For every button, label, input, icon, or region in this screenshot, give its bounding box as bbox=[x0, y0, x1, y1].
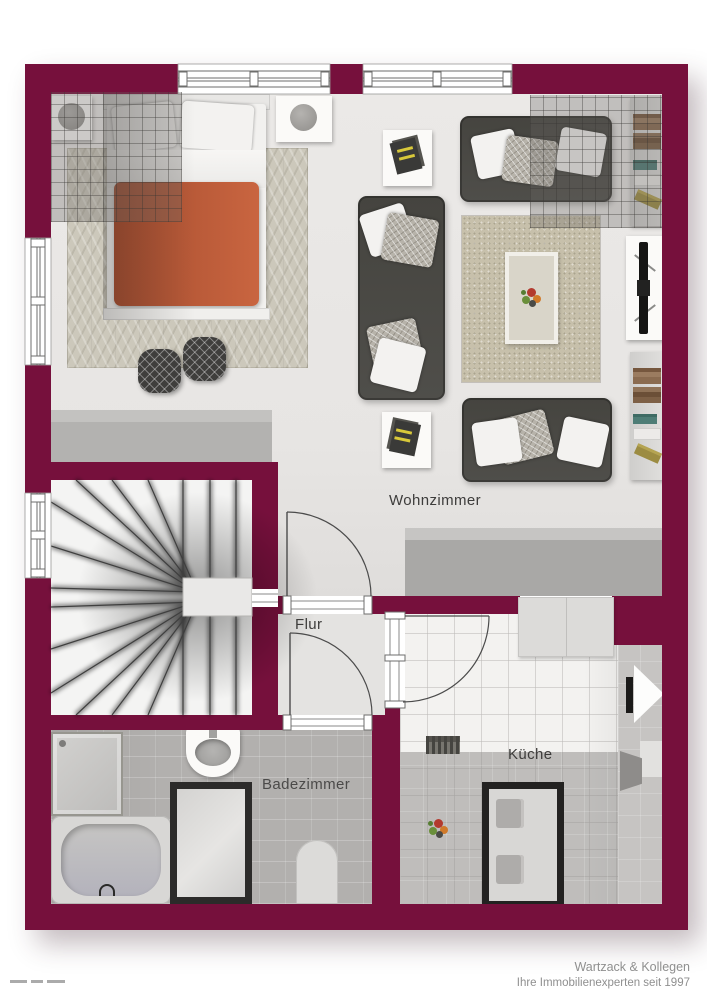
kitchen-table bbox=[482, 782, 564, 908]
fruit-bowl bbox=[521, 287, 543, 309]
living-wall-shadow bbox=[405, 528, 662, 596]
chair bbox=[496, 799, 524, 828]
footer-company: Wartzack & Kollegen bbox=[517, 959, 690, 976]
footer-branding: Wartzack & Kollegen Ihre Immobilienexper… bbox=[517, 959, 690, 991]
sofa-top bbox=[460, 116, 612, 202]
art-print bbox=[390, 137, 423, 174]
books bbox=[633, 160, 657, 170]
bathtub-faucet bbox=[99, 884, 115, 896]
books bbox=[633, 368, 661, 384]
sofa-pillow bbox=[556, 416, 610, 469]
sofa-bottom bbox=[462, 398, 612, 482]
double-bed bbox=[103, 94, 270, 320]
side-table-art-top bbox=[383, 130, 432, 186]
kitchen-counter-right bbox=[618, 645, 666, 904]
books bbox=[633, 114, 661, 130]
room-label-wohnzimmer: Wohnzimmer bbox=[389, 492, 481, 509]
sofa-pillow-patterned bbox=[380, 212, 440, 268]
wall-stair-bottom bbox=[25, 715, 285, 730]
tv-hub bbox=[637, 280, 650, 296]
pouf-right bbox=[183, 337, 226, 381]
washbasin bbox=[186, 727, 240, 777]
chair bbox=[496, 855, 524, 884]
wall-bedroom-stair-divider bbox=[25, 462, 278, 480]
washbasin-tap bbox=[209, 729, 217, 738]
bathtub bbox=[51, 816, 171, 904]
watermark-smudge bbox=[10, 980, 65, 983]
books bbox=[633, 387, 661, 403]
kitchen-counter-top bbox=[518, 597, 614, 657]
footer-tagline: Ihre Immobilienexperten seit 1997 bbox=[517, 976, 690, 991]
floor-plan-page: { "rooms": { "wohnzimmer": "Wohnzimmer",… bbox=[0, 0, 707, 1000]
counter-appliance-bar bbox=[626, 677, 633, 713]
wall-bath-kitchen-divider bbox=[372, 715, 400, 904]
books bbox=[633, 133, 661, 149]
bedroom-wall-shadow bbox=[51, 410, 272, 462]
room-label-kueche: Küche bbox=[508, 746, 553, 763]
sofa-pillow bbox=[471, 417, 523, 467]
stair-room-floor bbox=[51, 480, 252, 715]
sofa-left bbox=[358, 196, 445, 400]
nightstand-lamp-right bbox=[290, 104, 317, 131]
books bbox=[634, 189, 662, 210]
shelf-board bbox=[633, 428, 661, 440]
wall-right bbox=[662, 64, 688, 930]
shower-drain bbox=[59, 740, 66, 747]
wall-living-bottom-left bbox=[252, 596, 283, 614]
room-label-badezimmer: Badezimmer bbox=[262, 776, 350, 793]
counter-sink-dark bbox=[620, 751, 642, 791]
nightstand-lamp-left bbox=[58, 103, 85, 130]
wall-bottom bbox=[25, 904, 688, 930]
bath-mat bbox=[296, 840, 338, 904]
kitchen-radiator bbox=[426, 736, 460, 754]
books bbox=[633, 414, 657, 424]
glass-shower-cabin bbox=[170, 782, 252, 904]
sofa-pillow-patterned bbox=[501, 135, 559, 188]
sofa-pillow bbox=[555, 126, 608, 177]
fruit-bowl-kitchen bbox=[428, 818, 450, 840]
side-table-art-bottom bbox=[382, 412, 431, 468]
counter-appliance-arrow bbox=[634, 665, 664, 723]
wall-kitchen-corner bbox=[612, 596, 688, 645]
wall-top-pier bbox=[330, 64, 363, 94]
bookshelf-bottom bbox=[630, 352, 664, 480]
shelf-board bbox=[633, 174, 661, 186]
wall-hall-kitchen-stub bbox=[385, 706, 400, 715]
bed-light-shading bbox=[103, 94, 270, 320]
art-print bbox=[389, 420, 421, 457]
washbasin-bowl bbox=[195, 739, 231, 766]
bookshelf-top bbox=[630, 98, 664, 226]
counter-divider bbox=[566, 597, 567, 657]
wall-left-lower bbox=[25, 578, 51, 930]
tv-board bbox=[626, 236, 664, 340]
wall-living-bottom-right bbox=[372, 596, 520, 614]
pouf-left bbox=[138, 349, 181, 393]
books bbox=[634, 443, 662, 464]
shower bbox=[51, 732, 123, 816]
room-label-flur: Flur bbox=[295, 616, 322, 633]
wall-left-upper bbox=[25, 64, 51, 238]
